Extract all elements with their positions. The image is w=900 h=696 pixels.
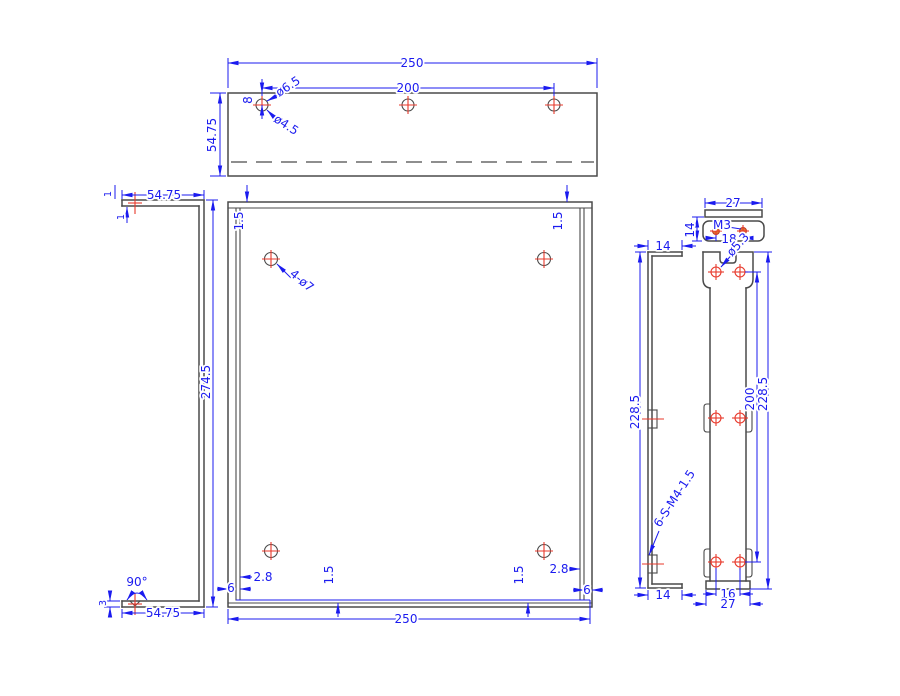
- side-view-outline: [122, 200, 204, 607]
- dim-label-top-depth: 54.75: [205, 118, 219, 152]
- callout-thread: M3: [713, 218, 741, 232]
- hole-marker: [399, 96, 417, 114]
- dim-bracket-flange-top: 14: [634, 239, 696, 253]
- dim-inset-bottom-left: 2.8: [240, 570, 273, 584]
- dim-label-front-width: 250: [395, 612, 418, 626]
- dim-label-offset-tr: 1.5: [551, 211, 565, 230]
- dim-label-edge-br: 6: [583, 583, 591, 597]
- dim-label-bend-angle: 90°: [126, 575, 147, 589]
- dim-label-height: 274.5: [199, 365, 213, 399]
- dim-depth: 54.75: [205, 93, 226, 176]
- dim-label-bend-right: 1.5: [512, 565, 526, 584]
- dim-edge-bottom-right: 6: [573, 583, 603, 597]
- dim-label-bracket-front-height: 228.5: [756, 377, 770, 411]
- dim-label-edge-bl: 6: [227, 581, 235, 595]
- dim-label-hole-dia: ø4.5: [271, 112, 301, 138]
- hole-marker: [535, 542, 553, 560]
- standoff-bottom: [642, 555, 664, 573]
- dim-flange-bottom: 54.75: [122, 606, 204, 620]
- hole-marker: [262, 542, 280, 560]
- side-view-left: 54.75 1 1 274.5 90° 3 54.75: [98, 185, 218, 620]
- dim-label-hem: 3: [98, 600, 109, 606]
- dim-label-flange-top: 54.75: [147, 188, 181, 202]
- callout-cbore: ø6.5: [267, 73, 303, 101]
- flange-detail-view: 27 M3 18 14: [683, 196, 764, 246]
- dim-label-bracket-flange-bottom: 14: [655, 588, 670, 602]
- dim-label-inset-br: 2.8: [549, 562, 568, 576]
- dim-bend-angle: 90°: [126, 575, 147, 600]
- dim-front-width: 250: [228, 600, 590, 626]
- dim-label-flange-depth: 14: [683, 222, 697, 237]
- dim-label-hole-row-span: 200: [743, 388, 757, 411]
- dim-bracket-flange-bottom: 14: [634, 588, 696, 602]
- front-view-inner-edges: [228, 208, 592, 603]
- top-view: 250 200 54.75 8 ø6.5 ø4.5: [205, 56, 597, 176]
- dim-label-thread: M3: [713, 218, 731, 232]
- dim-label-bracket-front-width: 27: [720, 597, 735, 611]
- cad-drawing: 250 200 54.75 8 ø6.5 ø4.5: [0, 0, 900, 696]
- drawing-canvas: 250 200 54.75 8 ø6.5 ø4.5: [0, 0, 900, 696]
- dim-edge-bottom-left: 6: [217, 581, 251, 595]
- front-view: 4-ø7 1.5 1.5 2.8 6 1.5 1.5 2.8: [217, 185, 603, 626]
- dim-bracket-height: 228.5: [628, 252, 646, 588]
- dim-flange-depth: 14: [683, 217, 704, 241]
- dim-thickness-top: 1: [103, 185, 115, 199]
- dim-label-thickness-top: 1: [103, 191, 114, 197]
- bracket-front-view: ø5.3 200 228.5 16 27: [693, 230, 772, 611]
- hole-marker: [535, 250, 553, 268]
- hole-marker: [545, 96, 563, 114]
- standoff-middle: [642, 410, 664, 428]
- callout-hole-dia: ø4.5: [267, 110, 301, 138]
- dim-flange-width: 27: [705, 196, 762, 210]
- dim-label-standoffs: 6-S-M4-1.5: [651, 467, 698, 529]
- dim-label-top-hole-spacing: 200: [397, 81, 420, 95]
- dim-label-top-width: 250: [401, 56, 424, 70]
- dim-thickness-lip: 1: [116, 207, 127, 223]
- bracket-front-outline: [703, 252, 753, 589]
- dim-hole-edge-offset: 8: [241, 79, 262, 119]
- dim-label-cbore-dia: ø6.5: [273, 73, 303, 99]
- dim-label-hole-edge-offset: 8: [241, 96, 255, 104]
- dim-label-bracket-height: 228.5: [628, 395, 642, 429]
- flange-edge: [705, 210, 762, 217]
- dim-label-flange-bottom: 54.75: [146, 606, 180, 620]
- dim-label-offset-tl: 1.5: [232, 211, 246, 230]
- dim-bend-offset-left: 1.5: [322, 565, 338, 617]
- callout-standoffs: 6-S-M4-1.5: [649, 467, 698, 555]
- bracket-side-view: 14 228.5 6-S-M4-1.5 14: [628, 239, 698, 602]
- bracket-side-outline: [648, 252, 682, 588]
- dim-inset-bottom-right: 2.8: [549, 562, 580, 576]
- dim-label-thickness-lip: 1: [116, 214, 127, 220]
- front-view-outline: [228, 202, 592, 607]
- dim-label-flange-width: 27: [725, 196, 740, 210]
- callout-corner-holes: 4-ø7: [277, 264, 317, 295]
- dim-bend-offset-right: 1.5: [512, 565, 528, 617]
- dim-label-inset-bl: 2.8: [253, 570, 272, 584]
- hole-marker: [262, 250, 280, 268]
- dim-height: 274.5: [199, 200, 218, 607]
- dim-bracket-front-height: 228.5: [750, 252, 772, 589]
- dim-label-bend-left: 1.5: [322, 565, 336, 584]
- dim-label-corner-holes: 4-ø7: [287, 267, 317, 295]
- dim-label-bracket-flange-top: 14: [655, 239, 670, 253]
- dim-hem: 3: [98, 592, 120, 616]
